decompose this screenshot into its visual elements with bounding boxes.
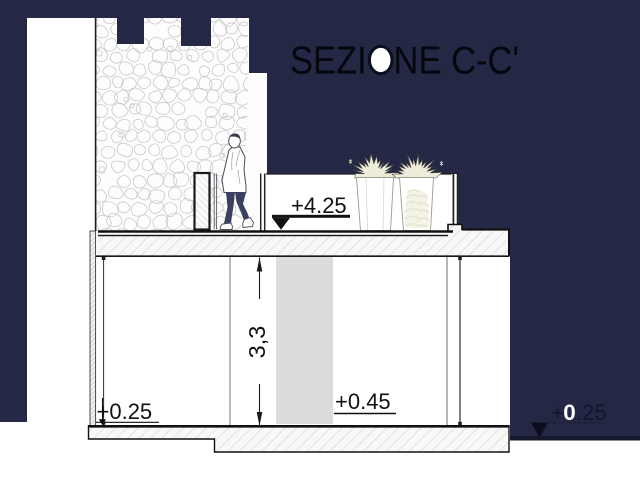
svg-text:SEZIONE C-C': SEZIONE C-C' (290, 40, 519, 83)
svg-text:+0.45: +0.45 (335, 389, 391, 414)
svg-text:0: 0 (563, 400, 576, 425)
svg-text:+4.25: +4.25 (291, 193, 347, 218)
svg-text:+0.25: +0.25 (551, 400, 607, 425)
svg-text:3,3: 3,3 (244, 326, 270, 359)
